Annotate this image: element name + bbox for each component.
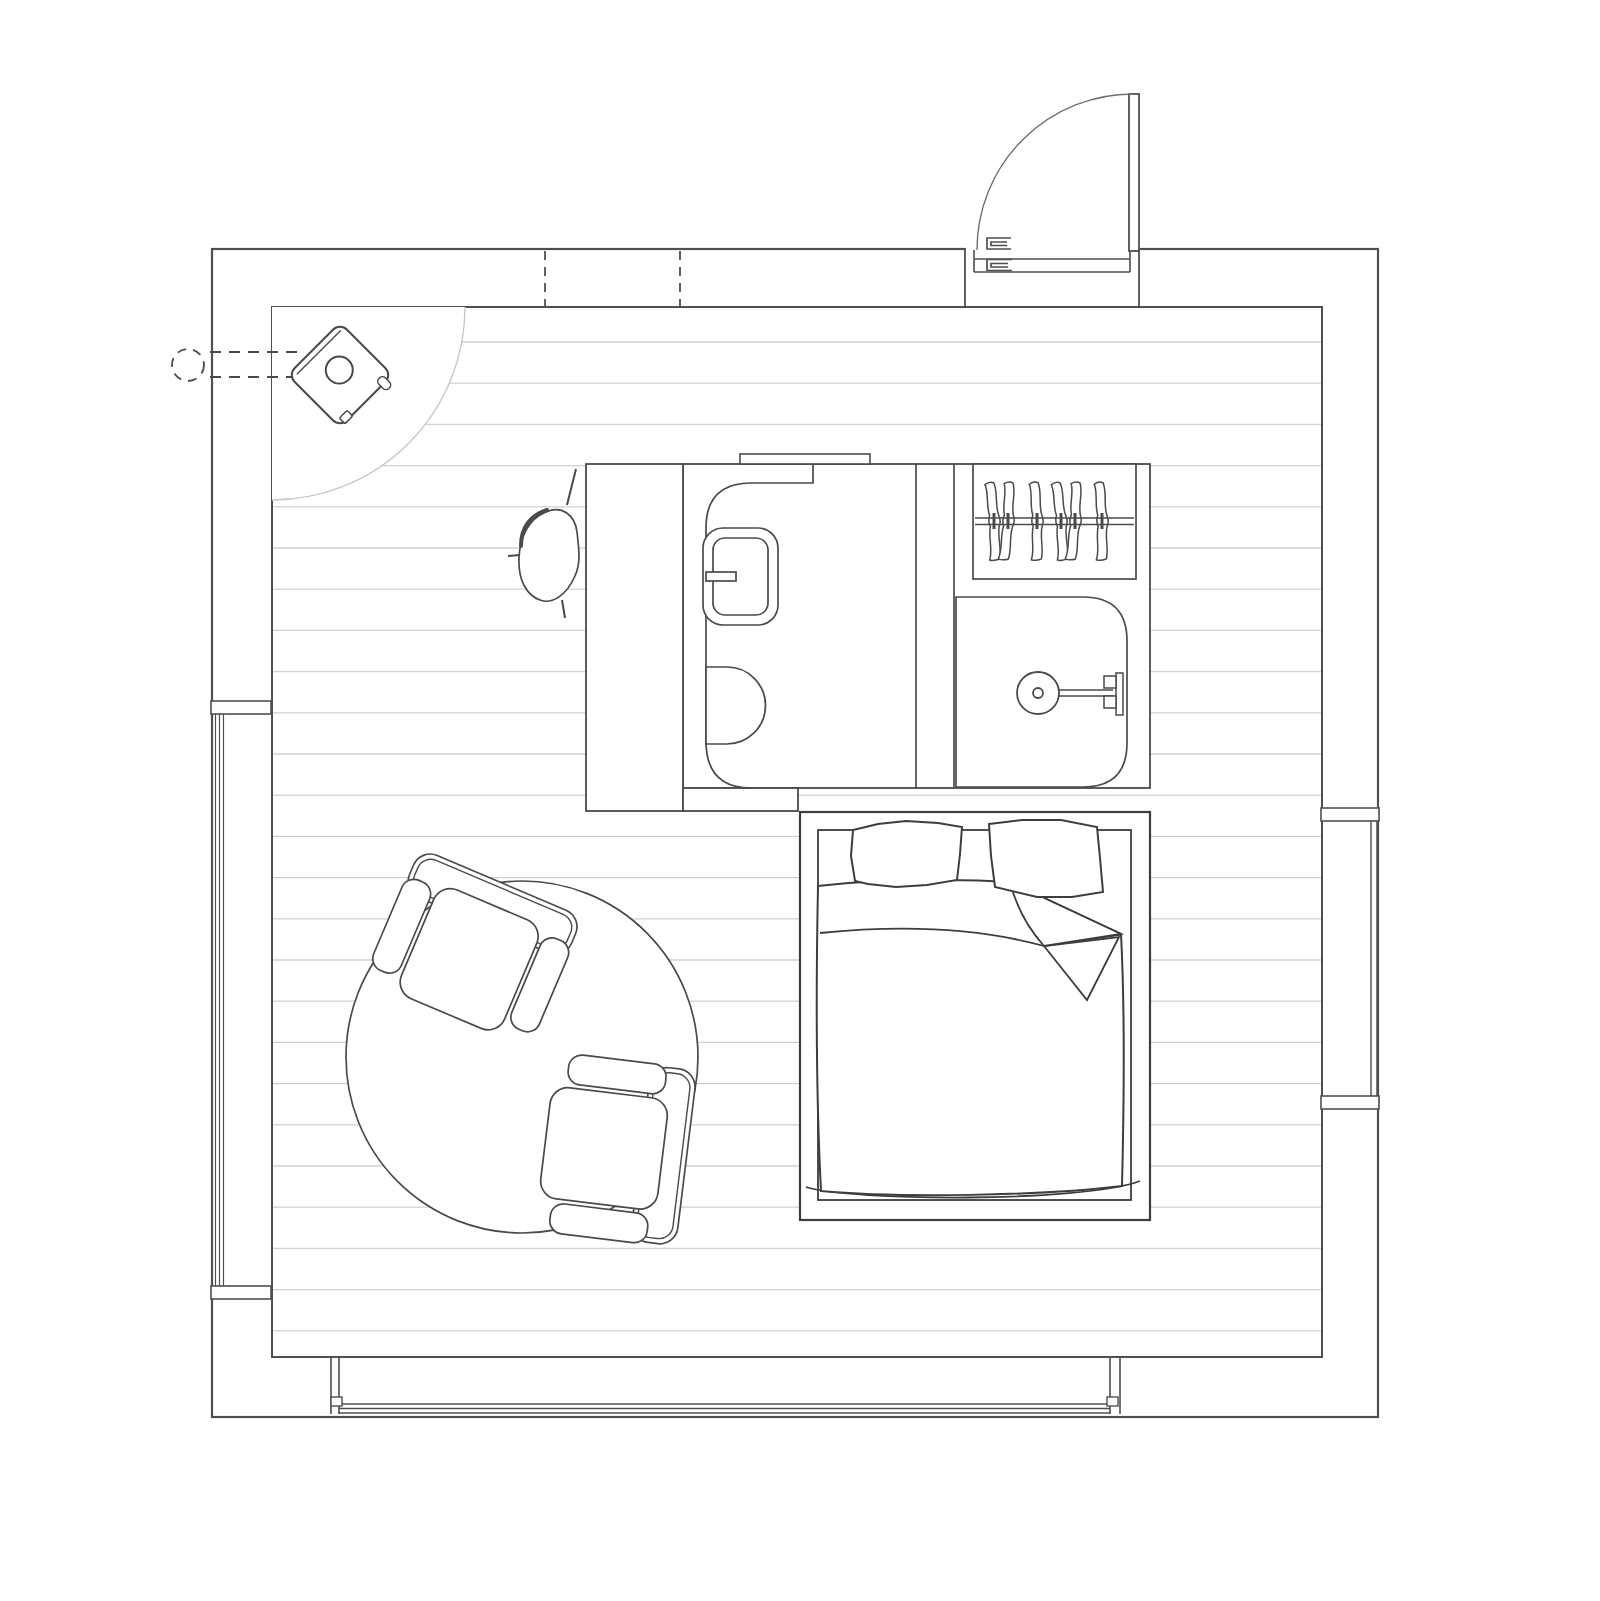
flue-outlet-dashed-circle [172,349,204,381]
window-cap [1321,808,1379,821]
shower-valve-bar [1116,673,1123,715]
door-leaf [1129,94,1139,251]
bed [800,812,1150,1220]
floor-plan [0,0,1600,1601]
shower-valve [1104,676,1116,688]
washbasin [703,528,778,625]
window-end-detail [1107,1397,1118,1406]
desk [586,464,683,811]
core-block [586,454,1150,811]
window-cap [211,701,271,714]
window-cap [1321,1096,1379,1109]
shower-valve [1104,696,1116,708]
faucet [706,572,736,581]
shower-head-center [1033,688,1043,698]
window-end-detail [331,1397,342,1406]
wardrobe [973,464,1136,579]
door-swing-arc [977,94,1133,250]
pillow [851,821,962,887]
shower [956,597,1127,787]
block-ledge [683,788,798,811]
floor-plan-drawing [0,0,1600,1601]
pillow [989,820,1103,897]
pod-shelf [740,454,870,464]
window-cap [211,1286,271,1299]
